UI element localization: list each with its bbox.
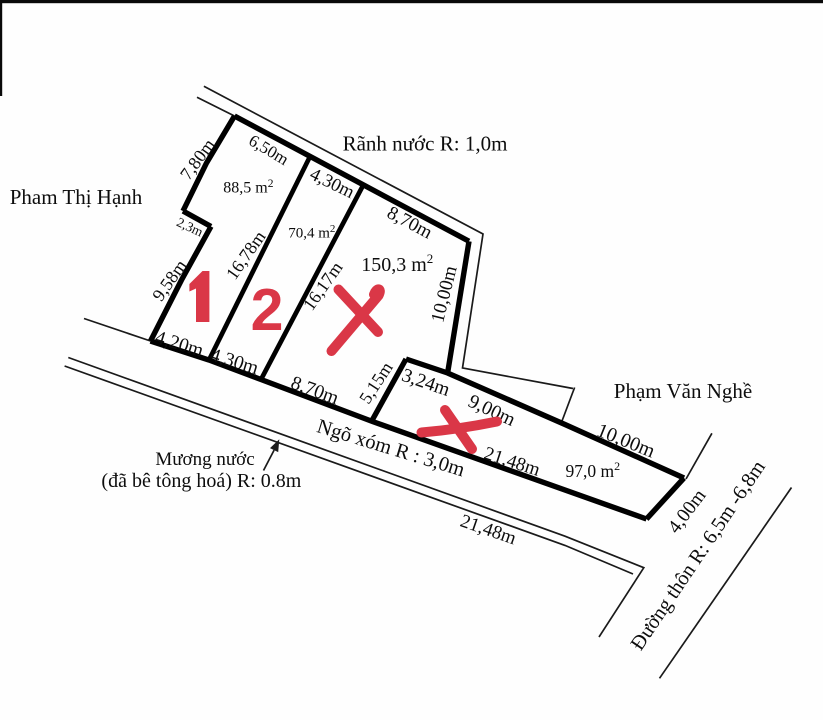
svg-text:70,4 m2: 70,4 m2	[288, 223, 335, 242]
svg-text:(đã bê tông hoá) R: 0.8m: (đã bê tông hoá) R: 0.8m	[101, 470, 301, 492]
svg-text:Phạm Văn Nghề: Phạm Văn Nghề	[614, 379, 752, 403]
svg-text:2: 2	[251, 277, 284, 343]
svg-text:Rãnh nước R: 1,0m: Rãnh nước R: 1,0m	[343, 132, 508, 156]
svg-text:150,3 m2: 150,3 m2	[361, 251, 433, 276]
svg-text:97,0 m2: 97,0 m2	[566, 459, 621, 481]
svg-text:88,5 m2: 88,5 m2	[223, 178, 273, 197]
svg-text:Mương nước: Mương nước	[155, 449, 254, 470]
svg-text:Pham Thị Hạnh: Pham Thị Hạnh	[10, 185, 143, 209]
